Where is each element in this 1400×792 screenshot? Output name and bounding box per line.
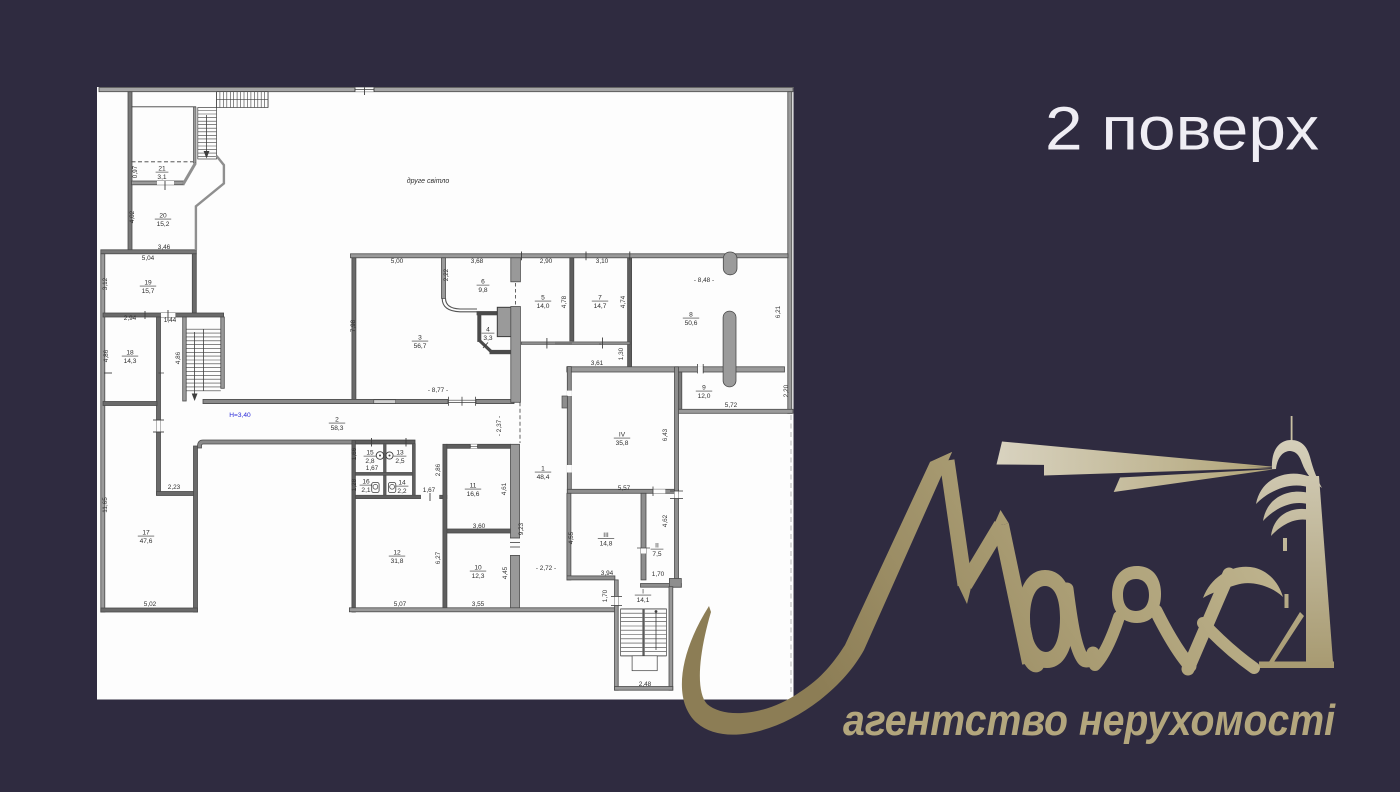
svg-text:5,57: 5,57 bbox=[618, 485, 631, 492]
svg-text:3,60: 3,60 bbox=[473, 523, 486, 530]
svg-text:друге світло: друге світло bbox=[407, 177, 450, 185]
svg-text:3,46: 3,46 bbox=[158, 244, 171, 251]
svg-text:2,22: 2,22 bbox=[443, 268, 450, 281]
svg-text:9,23: 9,23 bbox=[518, 522, 525, 535]
svg-text:4,61: 4,61 bbox=[501, 482, 508, 495]
svg-text:1,70: 1,70 bbox=[652, 571, 665, 578]
svg-text:2,23: 2,23 bbox=[168, 484, 181, 491]
svg-text:- 2,37 -: - 2,37 - bbox=[496, 416, 503, 436]
svg-text:2,48: 2,48 bbox=[639, 681, 652, 688]
svg-text:9,8: 9,8 bbox=[478, 287, 487, 294]
svg-text:1: 1 bbox=[541, 466, 545, 473]
svg-text:8: 8 bbox=[689, 312, 693, 319]
svg-text:19: 19 bbox=[144, 280, 152, 287]
svg-text:15,7: 15,7 bbox=[142, 288, 155, 295]
svg-text:3,61: 3,61 bbox=[591, 360, 604, 367]
svg-text:3: 3 bbox=[418, 335, 422, 342]
svg-text:15,2: 15,2 bbox=[157, 221, 170, 228]
svg-text:6: 6 bbox=[481, 279, 485, 286]
svg-text:14,7: 14,7 bbox=[594, 303, 607, 310]
svg-text:2: 2 bbox=[335, 417, 339, 424]
svg-text:50,6: 50,6 bbox=[685, 320, 698, 327]
svg-text:35,8: 35,8 bbox=[616, 440, 629, 447]
svg-text:5,00: 5,00 bbox=[391, 258, 404, 265]
svg-text:1,67: 1,67 bbox=[423, 487, 436, 494]
svg-text:12: 12 bbox=[393, 550, 401, 557]
svg-text:2,5: 2,5 bbox=[395, 458, 404, 465]
svg-text:3,12: 3,12 bbox=[102, 277, 109, 290]
svg-text:4,02: 4,02 bbox=[129, 210, 136, 223]
svg-text:4,55: 4,55 bbox=[568, 531, 575, 544]
svg-text:3,94: 3,94 bbox=[601, 570, 614, 577]
svg-text:- 8,77 -: - 8,77 - bbox=[428, 387, 448, 394]
svg-text:6,21: 6,21 bbox=[775, 305, 782, 318]
svg-text:3,55: 3,55 bbox=[472, 601, 485, 608]
svg-text:16,6: 16,6 bbox=[467, 491, 480, 498]
svg-text:5,04: 5,04 bbox=[142, 255, 155, 262]
svg-text:2,1: 2,1 bbox=[361, 487, 370, 494]
svg-text:I: I bbox=[642, 589, 644, 596]
svg-text:4,45: 4,45 bbox=[502, 566, 509, 579]
svg-text:7,98: 7,98 bbox=[350, 319, 357, 332]
svg-text:2 поверх: 2 поверх bbox=[1045, 95, 1319, 163]
svg-text:15: 15 bbox=[366, 450, 374, 457]
svg-text:4,78: 4,78 bbox=[561, 295, 568, 308]
svg-text:31,8: 31,8 bbox=[391, 558, 404, 565]
svg-text:14: 14 bbox=[398, 480, 406, 487]
svg-text:10: 10 bbox=[474, 565, 482, 572]
svg-text:18: 18 bbox=[126, 350, 134, 357]
svg-text:- 8,48 -: - 8,48 - bbox=[694, 277, 714, 284]
svg-text:2,20: 2,20 bbox=[783, 384, 790, 397]
svg-text:II: II bbox=[655, 543, 659, 550]
svg-text:2,2: 2,2 bbox=[397, 488, 406, 495]
svg-text:16: 16 bbox=[362, 479, 370, 486]
svg-text:5,07: 5,07 bbox=[394, 601, 407, 608]
svg-text:III: III bbox=[603, 532, 609, 539]
svg-text:Н=3,40: Н=3,40 bbox=[229, 412, 251, 419]
svg-text:12,0: 12,0 bbox=[698, 393, 711, 400]
svg-text:3,1: 3,1 bbox=[157, 174, 166, 181]
svg-text:7,5: 7,5 bbox=[652, 551, 661, 558]
svg-text:17: 17 bbox=[142, 530, 150, 537]
svg-text:IV: IV bbox=[619, 432, 626, 439]
svg-text:20: 20 bbox=[159, 213, 167, 220]
svg-text:14,3: 14,3 bbox=[124, 358, 137, 365]
svg-text:11,65: 11,65 bbox=[102, 497, 109, 513]
svg-text:47,6: 47,6 bbox=[140, 538, 153, 545]
svg-text:6,43: 6,43 bbox=[662, 428, 669, 441]
svg-text:58,3: 58,3 bbox=[331, 425, 344, 432]
svg-text:4,86: 4,86 bbox=[103, 349, 110, 362]
svg-text:3,68: 3,68 bbox=[471, 258, 484, 265]
svg-text:14,8: 14,8 bbox=[600, 541, 613, 548]
svg-text:0,97: 0,97 bbox=[132, 165, 139, 178]
svg-text:9: 9 bbox=[702, 385, 706, 392]
svg-text:5: 5 bbox=[541, 295, 545, 302]
svg-text:2,90: 2,90 bbox=[540, 258, 553, 265]
svg-text:4,86: 4,86 bbox=[175, 351, 182, 364]
svg-text:14,1: 14,1 bbox=[637, 597, 650, 604]
svg-text:56,7: 56,7 bbox=[414, 343, 427, 350]
svg-text:5,72: 5,72 bbox=[725, 402, 738, 409]
svg-text:11: 11 bbox=[470, 483, 477, 490]
svg-text:14,0: 14,0 bbox=[537, 303, 550, 310]
svg-text:4: 4 bbox=[486, 327, 490, 334]
svg-text:1,44: 1,44 bbox=[164, 317, 177, 324]
svg-text:5,02: 5,02 bbox=[144, 601, 157, 608]
svg-text:2,94: 2,94 bbox=[124, 315, 137, 322]
svg-text:агентство нерухомості: агентство нерухомості bbox=[843, 696, 1336, 745]
svg-text:1,30: 1,30 bbox=[618, 347, 625, 360]
svg-text:1,67: 1,67 bbox=[366, 465, 379, 472]
svg-text:13: 13 bbox=[396, 450, 404, 457]
svg-text:4,62: 4,62 bbox=[662, 514, 669, 527]
svg-text:7: 7 bbox=[598, 295, 602, 302]
svg-text:1,66: 1,66 bbox=[351, 447, 358, 460]
svg-text:21: 21 bbox=[158, 166, 166, 173]
svg-text:1,28: 1,28 bbox=[351, 478, 358, 491]
svg-text:3,3: 3,3 bbox=[483, 335, 492, 342]
svg-text:1,70: 1,70 bbox=[602, 589, 609, 602]
svg-text:- 2,72 -: - 2,72 - bbox=[536, 565, 556, 572]
svg-text:3,10: 3,10 bbox=[596, 258, 609, 265]
svg-text:6,27: 6,27 bbox=[435, 551, 442, 564]
svg-text:12,3: 12,3 bbox=[472, 573, 485, 580]
svg-text:4,74: 4,74 bbox=[620, 295, 627, 308]
svg-text:2,86: 2,86 bbox=[435, 463, 442, 476]
svg-text:48,4: 48,4 bbox=[537, 474, 550, 481]
